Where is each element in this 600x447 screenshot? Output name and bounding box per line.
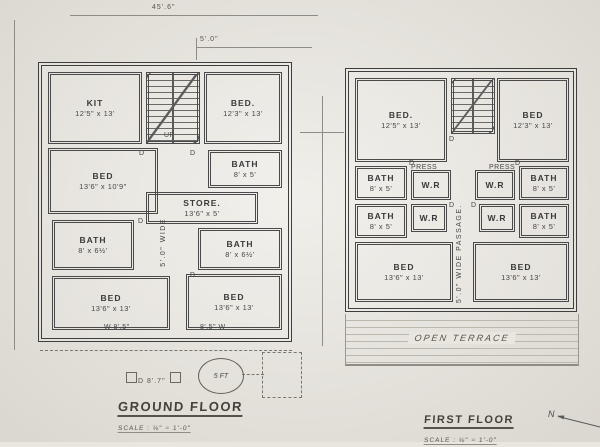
room-bed-mid-left: BED13'6" x 10'9" bbox=[48, 148, 158, 214]
room-label: BATH bbox=[80, 235, 107, 245]
room-dimensions: 13'6" x 13' bbox=[384, 273, 424, 282]
room-dimensions: 8' x 6½' bbox=[225, 250, 254, 259]
room-dimensions: 8' x 5' bbox=[533, 184, 556, 193]
verandah-dashed-line bbox=[40, 350, 292, 351]
plan-annotation: D bbox=[449, 202, 455, 209]
plan-annotation: 5'.0" WIDE bbox=[160, 218, 167, 267]
room-dimensions: 13'6" x 5' bbox=[184, 209, 219, 218]
room-kitchen: KIT12'5" x 13' bbox=[48, 72, 142, 144]
room-bath-mid-right: BATH8' x 6½' bbox=[198, 228, 282, 270]
porch-pier bbox=[126, 372, 137, 383]
room-dimensions: 12'3" x 13' bbox=[513, 121, 553, 130]
room-dimensions: 13'6" x 13' bbox=[501, 273, 541, 282]
plan-annotation: D bbox=[190, 150, 196, 157]
plan-annotation: 8'.5" W bbox=[200, 324, 226, 331]
open-terrace: OPEN TERRACE bbox=[345, 314, 579, 366]
room-label: BED. bbox=[389, 110, 413, 120]
plan-annotation: PRESS bbox=[411, 164, 437, 171]
room-dimensions: 8' x 5' bbox=[370, 222, 393, 231]
dimension-line bbox=[322, 96, 323, 346]
room-label: BATH bbox=[368, 173, 395, 183]
dimension-line bbox=[196, 38, 197, 60]
plan-annotation: D bbox=[471, 202, 477, 209]
steps-dashed-line bbox=[242, 374, 264, 375]
room-dimensions: 13'6" x 13' bbox=[91, 304, 131, 313]
ground-floor-title: GROUND FLOOR bbox=[117, 399, 243, 417]
room-bath-left-2: BATH8' x 5' bbox=[355, 204, 407, 238]
room-label: BATH bbox=[232, 159, 259, 169]
room-label: BED bbox=[511, 262, 532, 272]
room-label: BATH bbox=[531, 173, 558, 183]
room-dimensions: 12'5" x 13' bbox=[75, 109, 115, 118]
room-bed-top-left: BED.12'5" x 13' bbox=[355, 78, 447, 162]
room-wr-right-2: W.R bbox=[479, 204, 515, 232]
room-label: BED bbox=[101, 293, 122, 303]
room-bath-left-1: BATH8' x 5' bbox=[355, 166, 407, 200]
dimension-line bbox=[300, 132, 344, 133]
plan-annotation: D bbox=[515, 160, 521, 167]
plan-annotation: UP bbox=[164, 132, 175, 139]
room-bath-right-1: BATH8' x 5' bbox=[519, 166, 569, 200]
room-wr-right-1: W.R bbox=[475, 170, 515, 200]
north-arrow: N bbox=[548, 404, 555, 422]
room-label: BED bbox=[224, 292, 245, 302]
plan-annotation: D bbox=[449, 136, 455, 143]
room-staircase bbox=[451, 78, 495, 134]
room-dimensions: 8' x 5' bbox=[370, 184, 393, 193]
room-wr-left-2: W.R bbox=[411, 204, 447, 232]
room-label: STORE. bbox=[183, 198, 221, 208]
room-label: BATH bbox=[227, 239, 254, 249]
room-label: W.R bbox=[421, 180, 440, 190]
first-floor-scale: SCALE : ⅛" = 1'-0" bbox=[424, 437, 498, 445]
well-circle-label: 5 FT bbox=[214, 373, 228, 380]
room-label: W.R bbox=[485, 180, 504, 190]
room-bed-top-right: BED12'3" x 13' bbox=[497, 78, 569, 162]
first-floor-title: FIRST FLOOR bbox=[423, 414, 514, 429]
dimension-line bbox=[14, 20, 15, 350]
room-label: BED bbox=[394, 262, 415, 272]
porch-pier bbox=[170, 372, 181, 383]
room-bath-right-2: BATH8' x 5' bbox=[519, 204, 569, 238]
north-arrow-label: N bbox=[548, 409, 555, 419]
plan-annotation: D bbox=[139, 150, 145, 157]
plan-annotation: D bbox=[190, 272, 196, 279]
room-dimensions: 12'5" x 13' bbox=[381, 121, 421, 130]
room-label: KIT bbox=[87, 98, 104, 108]
room-wr-left-1: W.R bbox=[411, 170, 451, 200]
first-floor-title-block: FIRST FLOOR SCALE : ⅛" = 1'-0" bbox=[424, 410, 514, 447]
room-dimensions: 13'6" x 10'9" bbox=[79, 182, 127, 191]
room-dimensions: 12'3" x 13' bbox=[223, 109, 263, 118]
plan-annotation: PRESS bbox=[489, 164, 515, 171]
room-label: BED bbox=[93, 171, 114, 181]
room-bed-bottom-left: BED13'6" x 13' bbox=[355, 242, 453, 302]
room-label: BED bbox=[523, 110, 544, 120]
room-label: BED. bbox=[231, 98, 255, 108]
well-circle: 5 FT bbox=[198, 358, 244, 394]
steps-dashed-box bbox=[262, 352, 302, 398]
room-bath-top-right: BATH8' x 5' bbox=[208, 150, 282, 188]
blueprint-canvas: 45'.6" 5'.0" KIT12'5" x 13'BED.12'3" x 1… bbox=[0, 0, 600, 442]
first-floor-plan: BED.12'5" x 13'BED12'3" x 13'BATH8' x 5'… bbox=[345, 68, 577, 312]
offset-dimension: 5'.0" bbox=[200, 36, 219, 43]
room-label: W.R bbox=[487, 213, 506, 223]
room-dimensions: 8' x 5' bbox=[533, 222, 556, 231]
room-dimensions: 13'6" x 13' bbox=[214, 303, 254, 312]
room-bed-bottom-right: BED13'6" x 13' bbox=[473, 242, 569, 302]
ground-floor-scale: SCALE : ⅛" = 1'-0" bbox=[118, 425, 192, 433]
ground-floor-plan: KIT12'5" x 13'BED.12'3" x 13'BED13'6" x … bbox=[38, 62, 292, 342]
room-bed-bottom-right: BED13'6" x 13' bbox=[186, 274, 282, 330]
open-terrace-label: OPEN TERRACE bbox=[408, 332, 517, 344]
ground-floor-title-block: GROUND FLOOR SCALE : ⅛" = 1'-0" bbox=[118, 398, 243, 435]
plan-annotation: D bbox=[409, 160, 415, 167]
room-label: BATH bbox=[368, 211, 395, 221]
north-arrow-line bbox=[558, 416, 600, 428]
room-label: W.R bbox=[419, 213, 438, 223]
room-dimensions: 8' x 6½' bbox=[78, 246, 107, 255]
plan-annotation: W 8'.5" bbox=[104, 324, 130, 331]
room-dimensions: 8' x 5' bbox=[234, 170, 257, 179]
porch-door-label: D 8'.7" bbox=[138, 378, 166, 385]
room-bath-mid-left: BATH8' x 6½' bbox=[52, 220, 134, 270]
dimension-line bbox=[196, 47, 312, 48]
room-bed-bottom-left: BED13'6" x 13' bbox=[52, 276, 170, 330]
plan-annotation: 5'.0" WIDE PASSAGE. bbox=[456, 204, 463, 303]
plan-annotation: D bbox=[138, 218, 144, 225]
room-label: BATH bbox=[531, 211, 558, 221]
overall-width-dimension: 45'.6" bbox=[152, 4, 175, 11]
dimension-line bbox=[70, 15, 318, 16]
room-bed-top-right: BED.12'3" x 13' bbox=[204, 72, 282, 144]
